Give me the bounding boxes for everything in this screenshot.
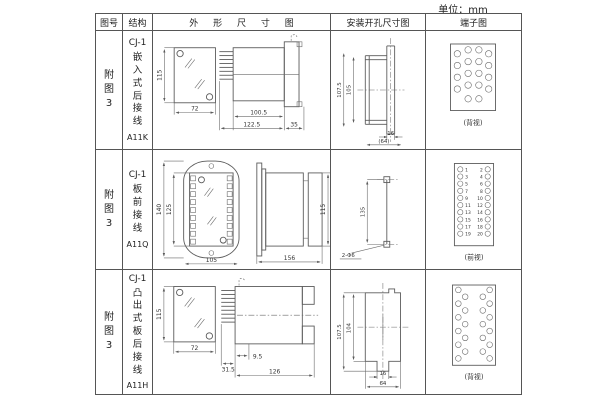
dim-label: 64: [379, 381, 386, 387]
terminal-strip-right: [227, 176, 232, 244]
fig-no-row3: 附图3: [96, 270, 123, 394]
dim-label: 115: [320, 204, 327, 216]
terminal-caption: (前视): [464, 252, 483, 261]
header-structure: 结构: [123, 14, 153, 31]
mounting-cell-row2: 135 2-Φ6: [331, 150, 426, 270]
dim-label: 72: [191, 107, 199, 113]
structure-row1: CJ-1 嵌入式后接线 A11K: [123, 31, 153, 150]
header-mounting: 安装开孔尺寸图: [331, 14, 426, 31]
structure-model: CJ-1: [129, 170, 147, 180]
terminal-diagram-row3: (背视): [427, 272, 520, 392]
dim-label: 156: [283, 255, 295, 262]
structure-row2: CJ-1 板前接线 A11Q: [123, 150, 153, 270]
svg-text:10: 10: [477, 196, 483, 202]
dim-label: 115: [155, 308, 162, 320]
mounting-cell-row1: 107.5 105 16 (64): [331, 31, 426, 150]
fig-no-row2: 附图3: [96, 150, 123, 270]
terminal-diagram-row1: (背视): [427, 32, 520, 148]
structure-desc: 凸出式板后接线: [132, 288, 144, 378]
side-view: 9.5 31.5 126: [221, 278, 318, 377]
dim-label: 105: [205, 257, 217, 264]
svg-text:3: 3: [465, 174, 468, 180]
dim-label: 72: [190, 345, 198, 352]
fig-no-text: 附图3: [103, 311, 116, 353]
fig-no-text: 附图3: [103, 189, 116, 231]
terminal-caption: (背视): [464, 372, 483, 381]
header-terminal: 端子图: [426, 14, 521, 31]
svg-text:7: 7: [465, 189, 468, 195]
front-view: 140 125 105: [155, 161, 238, 264]
outline-cell-row2: 140 125 105 156: [153, 150, 331, 270]
structure-model: CJ-1: [129, 38, 147, 48]
dim-label: 100.5: [250, 111, 267, 117]
dim-label: 35: [290, 122, 298, 128]
dim-label: 105: [346, 85, 352, 95]
dim-label: 104: [346, 322, 352, 333]
terminal-circles: [455, 287, 492, 361]
terminal-caption: (背视): [463, 118, 482, 127]
structure-desc: 板前接线: [132, 184, 144, 235]
terminal-numbers: 12 34 56 78 910 1112 1314 1516 1718 1920: [465, 167, 483, 237]
svg-text:6: 6: [480, 182, 483, 188]
svg-text:12: 12: [477, 203, 483, 209]
svg-text:8: 8: [480, 189, 483, 195]
dim-label: 9.5: [252, 354, 262, 361]
header-fig-no: 图号: [96, 14, 123, 31]
front-view: 115 72: [155, 287, 214, 354]
dim-label: (64): [378, 139, 389, 145]
hole-spec-label: 2-Φ6: [341, 252, 355, 258]
fig-no-row1: 附图3: [96, 31, 123, 150]
side-view: 156 115: [256, 163, 329, 264]
structure-model: CJ-1: [129, 274, 147, 284]
outline-drawing-row2: 140 125 105 156: [154, 151, 330, 268]
dim-label: 125: [165, 204, 172, 216]
svg-text:11: 11: [465, 203, 471, 209]
svg-text:20: 20: [477, 232, 483, 238]
terminal-strip-left: [190, 176, 195, 244]
outline-drawing-row1: 115 72: [154, 32, 330, 148]
terminal-circles: [458, 167, 491, 237]
spec-table: 图号 结构 外 形 尺 寸 图 安装开孔尺寸图 端子图 附图3 CJ-1 嵌入式…: [95, 13, 522, 395]
svg-text:18: 18: [477, 224, 483, 230]
mounting-drawing-row1: 107.5 105 16 (64): [332, 32, 425, 148]
dim-label: 140: [155, 204, 162, 216]
spec-sheet-page: 单位：mm 图号 结构 外 形 尺 寸 图 安装开孔尺寸图 端子图 附图3 CJ…: [0, 0, 600, 400]
svg-text:15: 15: [465, 217, 471, 223]
svg-text:1: 1: [465, 167, 468, 173]
structure-code: A11H: [127, 381, 149, 390]
dim-label: 107.5: [336, 82, 342, 97]
front-view: 115 72: [157, 48, 215, 115]
svg-text:5: 5: [465, 182, 468, 188]
structure-row3: CJ-1 凸出式板后接线 A11H: [123, 270, 153, 394]
dim-label: 107.5: [336, 324, 342, 339]
dim-label: 31.5: [221, 367, 234, 374]
terminal-cell-row2: 12 34 56 78 910 1112 1314 1516 1718 1920…: [426, 150, 521, 270]
outline-drawing-row3: 115 72: [154, 272, 330, 392]
terminal-diagram-row2: 12 34 56 78 910 1112 1314 1516 1718 1920…: [427, 151, 520, 268]
header-outline: 外 形 尺 寸 图: [153, 14, 331, 31]
fig-no-text: 附图3: [103, 69, 116, 111]
dim-label: 126: [268, 369, 280, 376]
svg-text:2: 2: [480, 167, 483, 173]
structure-code: A11K: [127, 133, 148, 142]
dim-label: 115: [157, 69, 163, 80]
dim-label: 16: [387, 131, 394, 137]
svg-text:14: 14: [477, 210, 483, 216]
dim-label: 122.5: [243, 122, 260, 128]
outline-cell-row3: 115 72: [153, 270, 331, 394]
terminal-cell-row3: (背视): [426, 270, 521, 394]
terminal-circles: [454, 47, 492, 102]
mounting-drawing-row2: 135 2-Φ6: [332, 152, 425, 268]
dim-label: 135: [360, 206, 366, 216]
dim-label: 16: [379, 371, 386, 377]
svg-text:16: 16: [477, 217, 483, 223]
mounting-drawing-row3: 107.5 104 16 64: [332, 272, 425, 392]
svg-text:19: 19: [465, 232, 471, 238]
structure-code: A11Q: [127, 240, 149, 249]
svg-text:13: 13: [465, 210, 471, 216]
outline-cell-row1: 115 72: [153, 31, 331, 150]
mounting-cell-row3: 107.5 104 16 64: [331, 270, 426, 394]
svg-text:9: 9: [465, 196, 468, 202]
structure-desc: 嵌入式后接线: [132, 52, 144, 129]
svg-text:4: 4: [480, 174, 483, 180]
side-view: 100.5 122.5 35: [219, 35, 304, 131]
terminal-cell-row1: (背视): [426, 31, 521, 150]
svg-text:17: 17: [465, 224, 471, 230]
